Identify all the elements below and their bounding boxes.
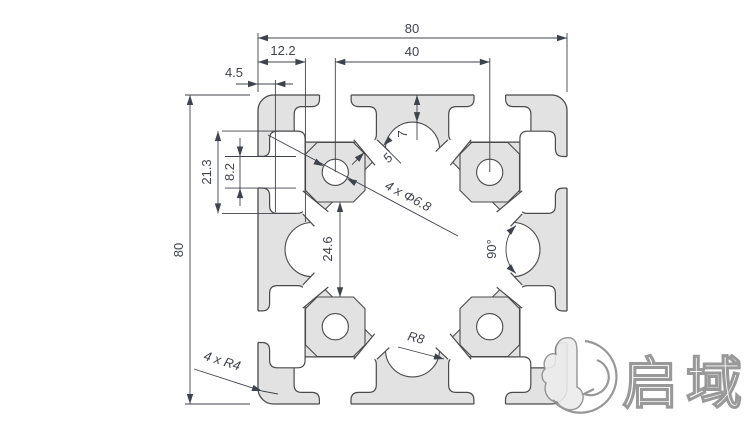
dim-label-overall-height: 80: [171, 243, 186, 257]
dim-label-overall-width: 80: [405, 21, 419, 36]
profile-drawing-canvas: 80 40 12.2 4.5 80 21.3: [0, 0, 751, 428]
dim-label-web-angle: 90°: [484, 239, 499, 259]
brand-logo-text: 启域: [622, 352, 750, 415]
dim-label-corner-radius: 4 x R4: [202, 348, 242, 373]
dim-label-top-wall: 7: [395, 130, 410, 137]
brand-logo: 启域: [542, 338, 750, 415]
dim-label-cavity-width: 21.3: [199, 159, 214, 184]
dim-label-slot-depth: 12.2: [270, 43, 295, 58]
dim-label-boss-gap: 24.6: [320, 236, 335, 261]
dim-label-lip-thickness: 4.5: [225, 65, 243, 80]
brand-logo-swirl-icon: [584, 360, 609, 395]
dim-label-hole-pitch: 40: [405, 44, 419, 59]
drawing-page: 80 40 12.2 4.5 80 21.3: [0, 0, 751, 428]
dim-label-slot-opening: 8.2: [222, 163, 237, 181]
